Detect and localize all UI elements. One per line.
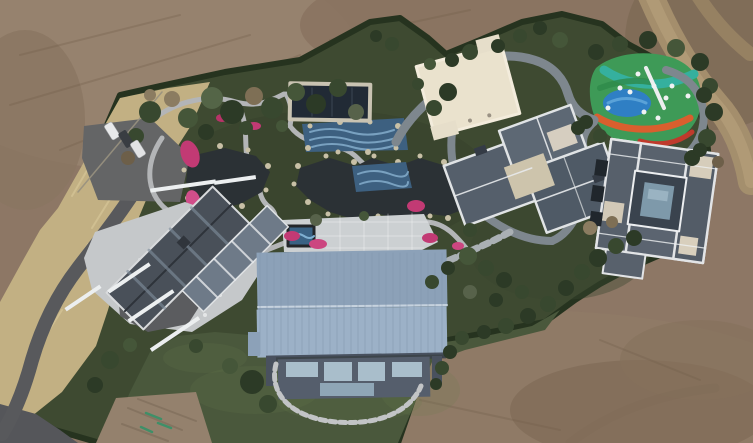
trees-and-shrubs-item: [459, 247, 477, 265]
trees-and-shrubs-item: [667, 39, 685, 57]
trees-and-shrubs-item: [348, 104, 364, 120]
barn-window-2: [324, 362, 352, 381]
trees-and-shrubs-item: [705, 103, 723, 121]
playground-equipment-item: [670, 84, 675, 89]
trees-and-shrubs-item: [520, 308, 536, 324]
trees-and-shrubs-item: [189, 339, 203, 353]
trees-and-shrubs-item: [439, 83, 457, 101]
playground-equipment-item: [664, 96, 669, 101]
trees-and-shrubs-item: [515, 285, 529, 299]
pond-rocks-item: [239, 203, 245, 209]
right-mansion-sw-annex: [603, 249, 646, 278]
right-mansion-window-well-2: [591, 185, 605, 203]
trees-and-shrubs-item: [606, 216, 618, 228]
trees-and-shrubs-item: [593, 129, 607, 143]
mosaic-rocks-item: [308, 124, 313, 129]
pond-rocks-item: [292, 182, 297, 187]
trees-and-shrubs-item: [441, 261, 455, 275]
trees-and-shrubs-item: [164, 91, 180, 107]
aerial-photo-svg: [0, 0, 753, 443]
trees-and-shrubs-item: [178, 108, 198, 128]
trees-and-shrubs-item: [425, 275, 439, 289]
playground-equipment-item: [652, 84, 657, 89]
barn-window-3: [358, 362, 385, 381]
barn-window-1: [286, 362, 318, 377]
trees-and-shrubs-item: [445, 53, 459, 67]
pond-rocks-item: [305, 199, 311, 205]
pond-rocks-item: [351, 159, 357, 165]
trees-and-shrubs-item: [462, 44, 478, 60]
trees-and-shrubs-item: [463, 223, 477, 237]
trees-and-shrubs-item: [608, 238, 624, 254]
trees-and-shrubs-item: [359, 211, 369, 221]
trees-and-shrubs-item: [426, 100, 442, 116]
mosaic-rocks-item: [305, 145, 311, 151]
trees-and-shrubs-item: [496, 272, 512, 288]
playground-equipment-item: [686, 94, 691, 99]
trees-and-shrubs-item: [691, 53, 709, 71]
pond-rocks-item: [246, 148, 251, 153]
trees-and-shrubs-item: [287, 83, 305, 101]
trees-and-shrubs-item: [477, 325, 491, 339]
trees-and-shrubs-item: [370, 30, 382, 42]
trees-and-shrubs-item: [588, 44, 604, 60]
trees-and-shrubs-item: [443, 345, 457, 359]
playground-equipment-item: [656, 116, 661, 121]
flowerbed-7: [422, 233, 438, 243]
trees-and-shrubs-item: [123, 338, 137, 352]
trees-and-shrubs-item: [87, 377, 103, 393]
trees-and-shrubs-item: [385, 37, 399, 51]
trees-and-shrubs-item: [245, 87, 263, 105]
pond-rocks-item: [428, 214, 433, 219]
trees-and-shrubs-item: [552, 32, 568, 48]
trees-and-shrubs-item: [139, 101, 161, 123]
trees-and-shrubs-item: [430, 378, 442, 390]
trees-and-shrubs-item: [101, 351, 119, 369]
mosaic-rocks-item: [336, 150, 341, 155]
flowerbed-10: [407, 200, 425, 212]
trees-and-shrubs-item: [696, 87, 712, 103]
trees-and-shrubs-item: [574, 264, 590, 280]
trees-and-shrubs-item: [712, 156, 724, 168]
trees-and-shrubs-item: [144, 89, 156, 101]
trees-and-shrubs-item: [201, 87, 223, 109]
trees-and-shrubs-item: [310, 214, 322, 226]
barn-window-4: [392, 362, 422, 377]
flagstone-mottle-light-item: [203, 313, 207, 317]
trees-and-shrubs-item: [540, 296, 556, 312]
trees-and-shrubs-item: [612, 36, 628, 52]
pond-rocks-item: [326, 212, 331, 217]
trees-and-shrubs-item: [589, 249, 607, 267]
trees-and-shrubs-item: [489, 293, 503, 307]
trees-and-shrubs-item: [435, 361, 449, 375]
trees-and-shrubs-item: [626, 230, 642, 246]
barn-window-lower: [320, 383, 374, 396]
trees-and-shrubs-item: [306, 94, 326, 114]
trees-and-shrubs-item: [424, 58, 436, 70]
trees-and-shrubs-item: [579, 115, 593, 129]
playground-equipment-item: [628, 90, 633, 95]
playground-equipment-item: [606, 106, 611, 111]
flowerbed-4: [284, 231, 300, 241]
pond-rocks-item: [372, 154, 377, 159]
trees-and-shrubs-item: [121, 151, 135, 165]
mosaic-rocks-item: [365, 149, 371, 155]
aerial-photo: [0, 0, 753, 443]
trees-and-shrubs-item: [693, 143, 707, 157]
trees-and-shrubs-item: [220, 100, 244, 124]
flowerbed-8: [452, 242, 464, 250]
trees-and-shrubs-item: [455, 331, 469, 345]
barn-roof-lower: [257, 306, 448, 357]
trees-and-shrubs-item: [498, 318, 514, 334]
trees-and-shrubs-item: [412, 78, 424, 90]
right-mansion-window-well-1: [594, 159, 608, 177]
pond-rocks-item: [217, 143, 223, 149]
barn-roof-upper: [257, 249, 448, 309]
playground-equipment-item: [642, 110, 647, 115]
trees-and-shrubs-item: [558, 280, 574, 296]
flowerbed-5: [309, 239, 327, 249]
trees-and-shrubs-item: [639, 31, 657, 49]
trees-and-shrubs-item: [533, 21, 547, 35]
trees-and-shrubs-item: [491, 39, 505, 53]
pond-rocks-item: [418, 154, 423, 159]
trees-and-shrubs-item: [329, 79, 347, 97]
trees-and-shrubs-item: [261, 97, 283, 119]
trees-and-shrubs-item: [240, 370, 264, 394]
playground-equipment-item: [618, 86, 623, 91]
trees-and-shrubs-item: [198, 124, 214, 140]
pond-rocks-item: [445, 215, 451, 221]
trees-and-shrubs-item: [239, 121, 253, 135]
trees-and-shrubs-item: [478, 260, 494, 276]
playground-equipment-item: [636, 72, 641, 77]
barn-roof-step: [248, 332, 260, 356]
trees-and-shrubs-item: [583, 221, 597, 235]
trees-and-shrubs-item: [276, 120, 288, 132]
pond-rocks-item: [182, 168, 187, 173]
right-mansion-skylight: [640, 182, 674, 220]
trees-and-shrubs-item: [259, 395, 277, 413]
pond-rocks-item: [264, 188, 269, 193]
trees-and-shrubs-item: [463, 285, 477, 299]
pond-rocks-item: [265, 163, 271, 169]
pond-rocks-item: [295, 163, 301, 169]
pond-rocks-item: [324, 154, 329, 159]
trees-and-shrubs-item: [222, 358, 238, 374]
trees-and-shrubs-item: [513, 29, 527, 43]
